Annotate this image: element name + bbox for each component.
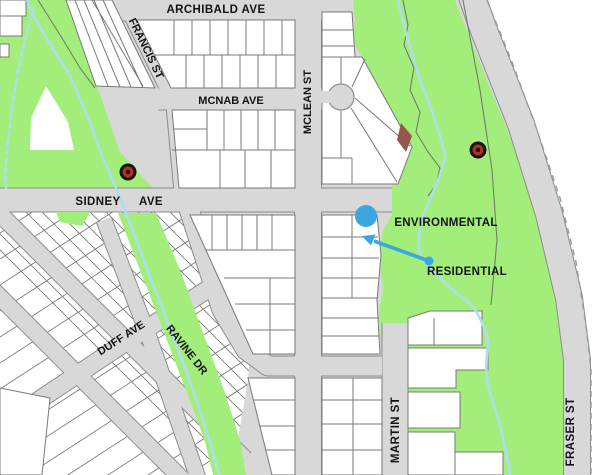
map-canvas: ARCHIBALD AVE MCNAB AVE FRANCIS ST MCLEA…	[0, 0, 600, 475]
street-label-martin: MARTIN ST	[390, 397, 402, 463]
monument-marker	[121, 165, 135, 179]
street-label-sidney: SIDNEY	[75, 196, 120, 208]
highlight-dot[interactable]	[355, 205, 377, 227]
street-label-sidney-ave: AVE	[139, 196, 163, 208]
street-label-archibald: ARCHIBALD AVE	[166, 4, 265, 16]
zone-label-environmental: ENVIRONMENTAL	[394, 217, 497, 229]
zone-label-residential: RESIDENTIAL	[427, 266, 507, 278]
street-label-mcnab: MCNAB AVE	[198, 95, 263, 107]
street-label-fraser: FRASER ST	[565, 398, 577, 467]
street-label-mclean: MCLEAN ST	[302, 70, 314, 134]
monument-marker	[471, 143, 485, 157]
zoning-map: ARCHIBALD AVE MCNAB AVE FRANCIS ST MCLEA…	[0, 0, 600, 475]
